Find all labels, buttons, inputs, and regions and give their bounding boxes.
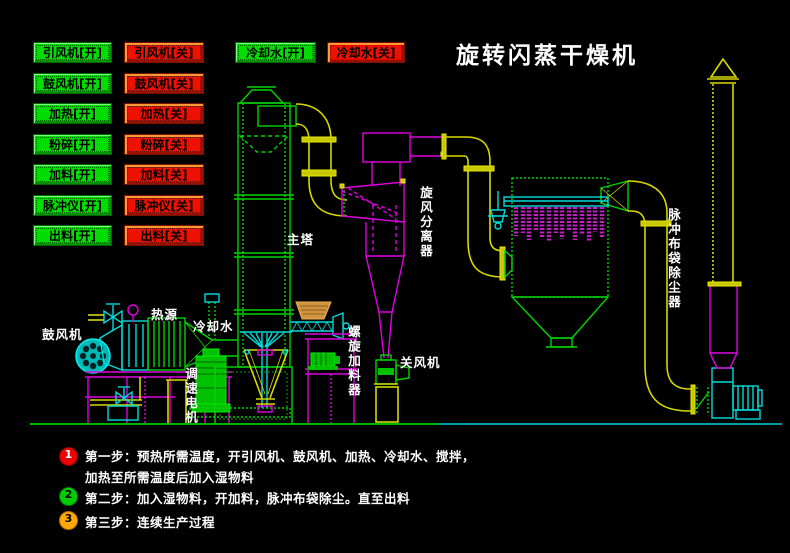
crusher-off-button[interactable]: 粉碎[关] (124, 134, 204, 155)
blower-on-button[interactable]: 鼓风机[开] (33, 73, 112, 94)
mixer-cone (244, 350, 288, 404)
heating-on-button[interactable]: 加热[开] (33, 103, 112, 124)
discharge-off-button[interactable]: 出料[关] (124, 225, 204, 246)
mixer-details (245, 350, 287, 412)
hmi-screen: 引风机[开] 鼓风机[开] 加热[开] 粉碎[开] 加料[开] 脉冲仪[开] 出… (0, 0, 790, 553)
blower-inlet-valve (88, 304, 122, 331)
crusher-on-button[interactable]: 粉碎[开] (33, 134, 112, 155)
induced-draft-fan (712, 368, 762, 419)
drain-valve-tank (90, 377, 142, 420)
label-speed-motor: 调速电机 (181, 367, 200, 425)
discharge-on-button[interactable]: 出料[开] (33, 225, 112, 246)
bag-filter (488, 178, 628, 347)
label-rotary-valve: 关风机 (400, 352, 441, 371)
fan-on-button[interactable]: 引风机[开] (33, 42, 112, 63)
exhaust-stack (707, 59, 741, 368)
step-3-text: 第三步：连续生产过程 (85, 512, 215, 531)
bagfilter-outlet-pipe (628, 181, 695, 414)
blower-off-button[interactable]: 鼓风机[关] (124, 73, 204, 94)
blower-fan (76, 325, 122, 373)
label-heat-source: 热源 (151, 304, 178, 323)
main-tower (234, 87, 296, 367)
pulse-on-button[interactable]: 脉冲仪[开] (33, 195, 112, 216)
fan-off-button[interactable]: 引风机[关] (124, 42, 204, 63)
label-screw-feeder: 螺旋加料器 (344, 325, 363, 398)
cyclone-to-bagfilter-pipe (442, 134, 505, 280)
label-bag-filter: 脉冲布袋除尘器 (664, 208, 683, 310)
step-3-badge: 3 (59, 511, 78, 530)
step-1-badge: 1 (59, 447, 78, 466)
step-2-badge: 2 (59, 487, 78, 506)
step-1-text-line-1: 第一步：预热所需温度，开引风机、鼓风机、加热、冷却水、搅拌， (85, 446, 475, 465)
step-2-text: 第二步：加入湿物料，开加料，脉冲布袋除尘。直至出料 (85, 488, 410, 507)
label-cooling-water: 冷却水 (193, 316, 234, 335)
label-main-tower: 主塔 (287, 229, 314, 248)
label-blower: 鼓风机 (42, 324, 83, 343)
tower-to-cyclone-pipe (296, 104, 347, 216)
agitator (240, 332, 292, 408)
pressure-gauge (128, 305, 138, 322)
pulse-off-button[interactable]: 脉冲仪[关] (124, 195, 204, 216)
page-title: 旋转闪蒸干燥机 (456, 36, 638, 70)
cooling-water-off-button[interactable]: 冷却水[关] (327, 42, 405, 63)
cooling-water-on-button[interactable]: 冷却水[开] (235, 42, 316, 63)
step-1-text-line-2: 加热至所需温度后加入湿物料 (85, 467, 254, 486)
fan-inlet-damper (696, 387, 709, 413)
feeder-on-button[interactable]: 加料[开] (33, 164, 112, 185)
feeder-off-button[interactable]: 加料[关] (124, 164, 204, 185)
air-filter-box (122, 321, 148, 370)
label-cyclone: 旋风分离器 (416, 186, 435, 259)
heating-off-button[interactable]: 加热[关] (124, 103, 204, 124)
